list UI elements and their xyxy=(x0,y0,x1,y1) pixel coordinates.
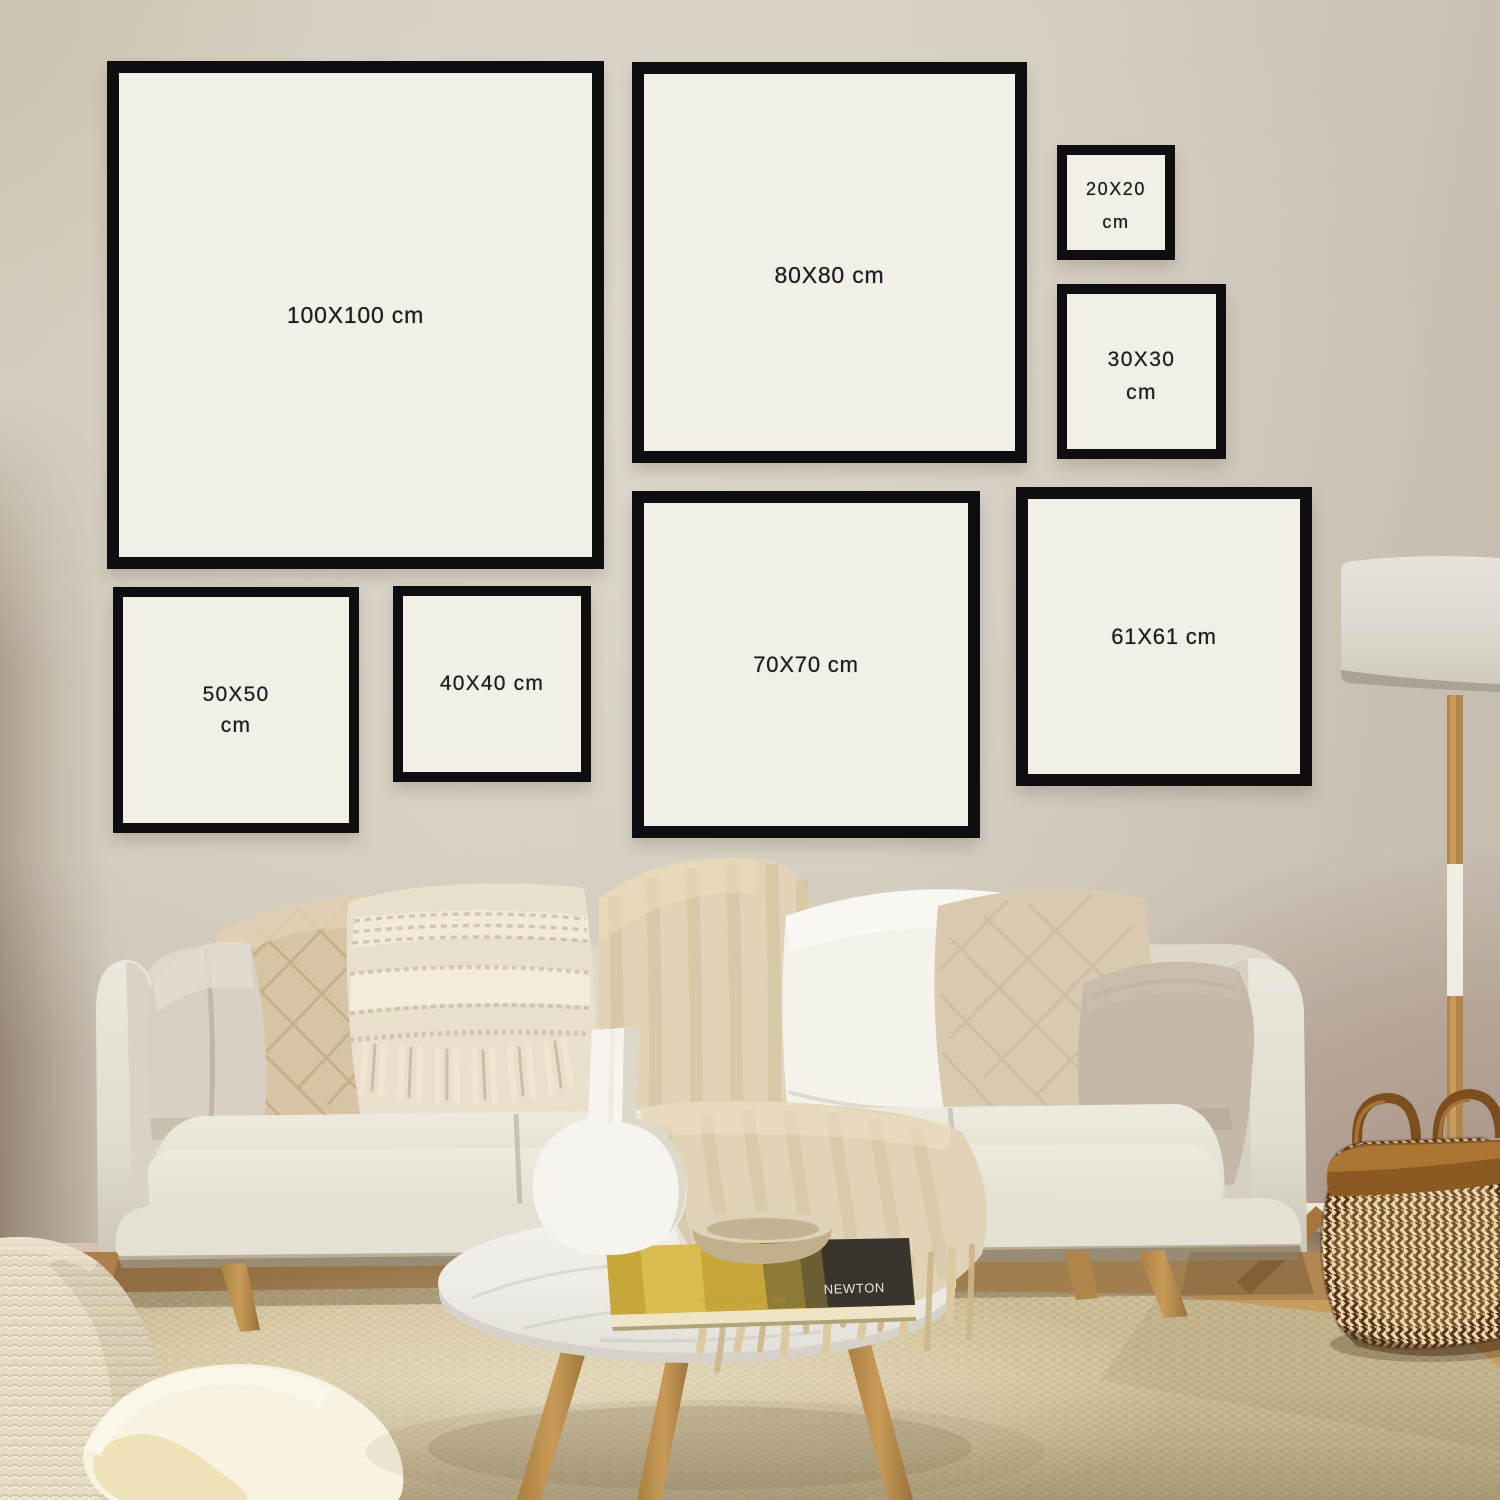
svg-text:NEWTON: NEWTON xyxy=(824,1280,886,1297)
